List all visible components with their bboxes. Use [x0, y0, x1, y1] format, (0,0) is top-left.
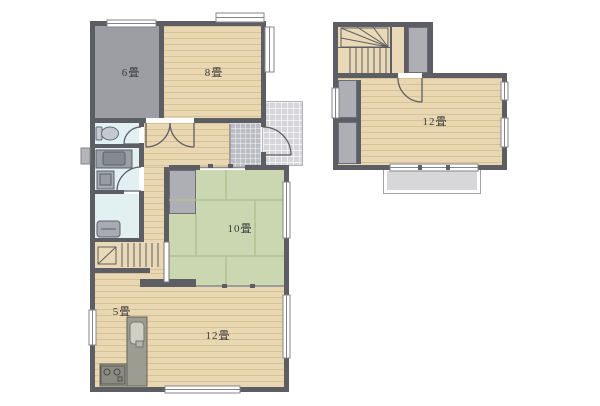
- closet-1f: [169, 170, 196, 214]
- label-room-12jo-2f: 12畳: [423, 113, 448, 129]
- room-12jo-2f: [338, 78, 502, 165]
- window-ldk-bottom: [165, 386, 240, 393]
- water-heater-icon: [81, 148, 90, 164]
- label-kitchen-5jo: 5畳: [113, 303, 132, 319]
- window-10jo-right: [283, 182, 290, 238]
- staircase-1f: [95, 242, 164, 268]
- entry-porch: [262, 101, 303, 166]
- balcony: [383, 167, 481, 194]
- window-8jo-right: [265, 27, 274, 72]
- room-ldk-12jo: [95, 273, 284, 387]
- label-room-10jo: 10畳: [228, 220, 253, 236]
- bathroom: [95, 194, 139, 238]
- floorplan-overlay: [0, 0, 600, 406]
- label-room-8jo: 8畳: [205, 64, 224, 80]
- window-2f-right-b: [501, 118, 508, 147]
- window-8jo-top: [216, 13, 264, 22]
- floorplan-canvas: 6畳 8畳 10畳 5畳 12畳 12畳: [0, 0, 600, 406]
- washroom: [95, 148, 139, 190]
- label-room-6jo: 6畳: [122, 64, 141, 80]
- label-ldk-12jo: 12畳: [206, 327, 231, 343]
- hallway-upper: [144, 123, 230, 167]
- window-ldk-right: [283, 295, 290, 358]
- closet-2f-top: [408, 27, 428, 73]
- window-2f-right-a: [501, 82, 508, 100]
- toilet-room: [95, 123, 139, 144]
- closet-2f-left-a: [338, 80, 357, 118]
- genkan-entry: [230, 123, 261, 167]
- closet-2f-left-b: [338, 122, 357, 164]
